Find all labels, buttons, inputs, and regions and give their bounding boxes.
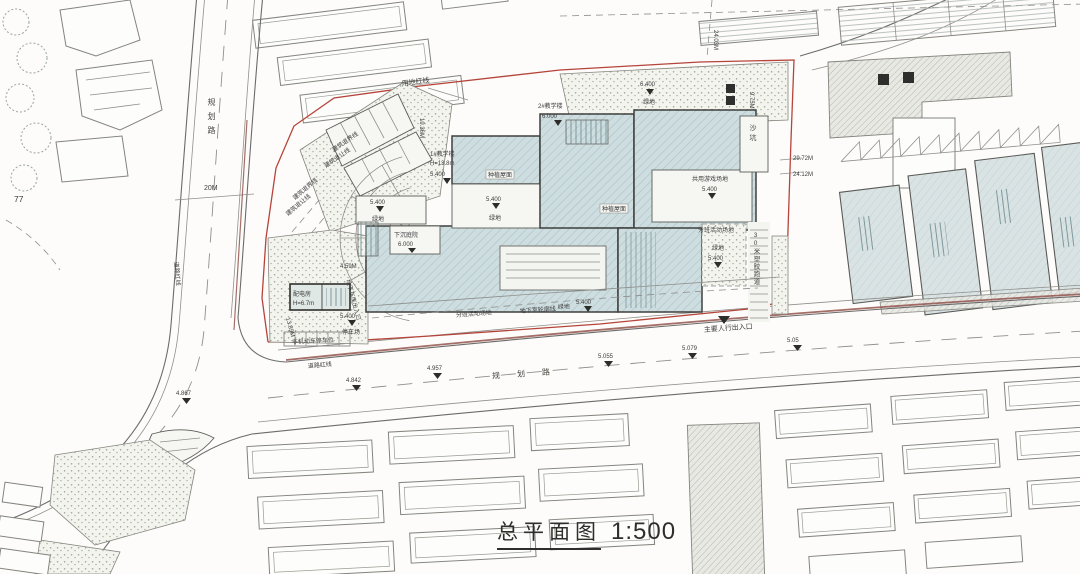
label-south-green-elev: 5.400 [576,300,592,306]
label-courtyard-green: 绿地 [489,214,501,222]
label-class-activity-elev: 5.400 [708,256,724,262]
context-right [828,52,1080,326]
parcel-label: 77 [14,194,24,204]
dim-459: 4.59M [340,264,357,270]
label-shared-play: 共用游戏场地 [692,175,728,183]
label-north-green: 绿地 [643,98,655,106]
elev-6: 5.05 [787,338,799,344]
dim-2403: 24.03M [712,30,718,50]
drawing-scale: 1:500 [611,518,676,546]
label-class-activity-green: 绿地 [712,244,724,252]
label-west-green-elev: 5.400 [370,200,386,206]
elev-3: 4.957 [427,366,443,372]
elev-5: 5.079 [682,346,698,352]
context-topleft: 77 [3,0,162,270]
site-plan-drawing: 77 [0,0,1080,574]
drawing-title-text: 总平面图 [497,516,601,550]
elev-2: 4.842 [346,378,362,384]
label-road-red-line-bottom: 道路红线 [307,360,332,370]
label-road-red-line-left: 道路红线 [172,261,182,286]
label-building1-elev: 5.400 [430,172,446,178]
label-planted-roof-1: 种植屋面 [488,171,512,179]
road-name-left: 规划路 [206,98,217,140]
site-plan-canvas: 77 [0,0,1080,574]
label-north-green-elev: 6.400 [640,82,656,88]
dim-2972: 29.72M [793,156,813,162]
drawing-title: 总平面图 1:500 [497,516,676,550]
label-planted-roof-2: 种植屋面 [602,205,626,213]
label-class-activity-east: 分班活动场地 [698,226,734,234]
label-sunken-courtyard: 下沉庭院 [394,231,418,239]
label-gatehouse-height: H=6.7m [293,301,314,307]
green-court-west [356,196,426,224]
label-sunken-elev: 6.000 [398,242,414,248]
dim-2412: 24.12M [793,172,813,178]
label-main-entrance: 主要人行出入口 [704,322,754,334]
label-west-green: 绿地 [372,215,384,223]
dim-1936: 19.36M [418,118,424,138]
label-building1-name: 1#教学楼 [430,150,455,158]
track-label: 30米塑胶跑道 [750,232,760,286]
label-shared-play-elev: 5.400 [702,187,718,193]
elev-1: 4.867 [176,391,192,397]
sunken-courtyard [390,226,440,254]
label-building1-height: H=13.8m [430,161,455,167]
sand-pit-label: 沙坑 [747,124,757,144]
label-building2-name: 2#教学楼 [538,102,563,110]
elev-4: 5.055 [598,354,614,360]
dim-975: 9.75M [748,92,754,109]
label-building2-elev: 6.000 [542,114,558,120]
label-gatehouse-name: 配电房 [293,290,311,298]
dim-road-width: 20M [204,185,218,192]
label-courtyard-elev: 5.400 [486,197,502,203]
label-parking: 停车场 [342,328,360,336]
